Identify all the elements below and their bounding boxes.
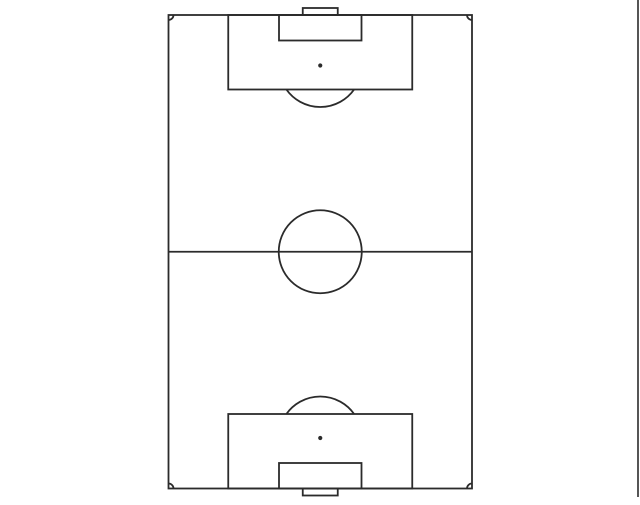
- soccer-pitch-diagram: [0, 0, 640, 505]
- drawing-canvas: [0, 0, 640, 505]
- penalty-spot-top: [318, 63, 322, 67]
- goal-area-top: [279, 15, 362, 41]
- penalty-area-top: [228, 15, 412, 90]
- penalty-area-bottom: [228, 414, 412, 489]
- goal-area-bottom: [279, 463, 362, 489]
- penalty-arc-bottom: [286, 396, 354, 414]
- penalty-arc-top: [286, 90, 354, 108]
- penalty-spot-bottom: [318, 436, 322, 440]
- goal-top: [303, 8, 338, 15]
- goal-bottom: [303, 489, 338, 496]
- soccer-pitch-shape[interactable]: [169, 8, 473, 496]
